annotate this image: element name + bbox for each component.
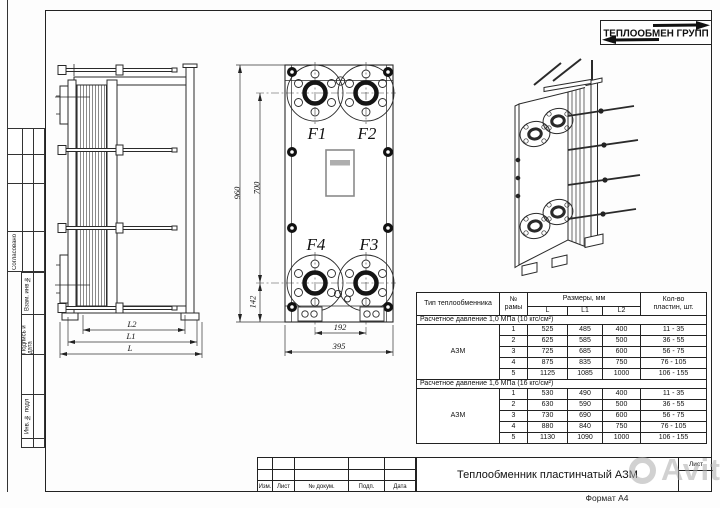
data-cell: 835 (568, 358, 603, 369)
data-cell: 3 (500, 411, 528, 422)
watermark-text: Avito (661, 452, 720, 488)
section-header: Расчетное давление 1,6 МПа (16 кгс/см²) (417, 380, 707, 389)
data-cell: 5 (500, 433, 528, 444)
data-cell: 56 - 75 (641, 411, 707, 422)
data-cell: 1130 (528, 433, 568, 444)
data-cell: 500 (603, 336, 641, 347)
data-cell: 400 (603, 389, 641, 400)
data-cell: 690 (568, 411, 603, 422)
data-cell: 11 - 35 (641, 325, 707, 336)
label-doc: № докум. (295, 481, 349, 492)
data-cell: 530 (528, 389, 568, 400)
data-cell: 56 - 75 (641, 347, 707, 358)
margin-label-inventory: Инв. № подл (22, 394, 33, 438)
col-header-size: L2 (603, 307, 641, 316)
data-cell: 875 (528, 358, 568, 369)
type-cell: АЗМ (417, 325, 500, 380)
data-cell: 590 (568, 400, 603, 411)
margin-lower-box: Взам. инв № Подпись и дата Инв. № подл (21, 272, 45, 448)
spec-table-grid: Тип теплообменника№рамыРазмеры, ммКол-во… (416, 292, 707, 444)
col-header-frame: №рамы (500, 293, 528, 316)
data-cell: 400 (603, 325, 641, 336)
data-cell: 2 (500, 336, 528, 347)
company-logo: ТЕПЛООБМЕН ГРУПП (600, 20, 712, 45)
label-podp: Подп. (349, 481, 385, 492)
col-header-type: Тип теплообменника (417, 293, 500, 316)
data-cell: 36 - 55 (641, 336, 707, 347)
revision-grid: Изм. Лист № докум. Подп. Дата (258, 458, 416, 491)
margin-label-replaced-inv: Взам. инв № (22, 273, 33, 314)
data-cell: 76 - 105 (641, 358, 707, 369)
divider (8, 183, 44, 184)
data-cell: 2 (500, 400, 528, 411)
data-cell: 106 - 155 (641, 369, 707, 380)
data-cell: 585 (568, 336, 603, 347)
data-cell: 4 (500, 358, 528, 369)
data-cell: 3 (500, 347, 528, 358)
label-list: Лист (273, 481, 295, 492)
divider (22, 438, 44, 439)
drawing-sheet: { "logo": { "name": "ТЕПЛООБМЕН ГРУПП" }… (0, 0, 720, 508)
col-header-plates: Кол-вопластин, шт. (641, 293, 707, 316)
label-izm: Изм. (258, 481, 273, 492)
data-cell: 1 (500, 389, 528, 400)
data-cell: 36 - 55 (641, 400, 707, 411)
data-cell: 840 (568, 422, 603, 433)
data-cell: 600 (603, 347, 641, 358)
data-cell: 1090 (568, 433, 603, 444)
label-data: Дата (385, 481, 416, 492)
data-cell: 725 (528, 347, 568, 358)
data-cell: 1000 (603, 433, 641, 444)
data-cell: 630 (528, 400, 568, 411)
section-header: Расчетное давление 1,0 МПа (10 кгс/см²) (417, 316, 707, 325)
format-label: Формат А4 (557, 493, 657, 503)
drawing-title: Теплообменник пластинчатый АЗМ (457, 469, 638, 481)
logo-arrows-icon: ТЕПЛООБМЕН ГРУПП (601, 21, 711, 44)
margin-label-sign-date: Подпись и дата (22, 314, 33, 354)
plate-pack-hatch (76, 80, 107, 307)
data-cell: 625 (528, 336, 568, 347)
data-cell: 880 (528, 422, 568, 433)
spec-table: Тип теплообменника№рамыРазмеры, ммКол-во… (416, 292, 707, 444)
data-cell: 1 (500, 325, 528, 336)
margin-label-approved: Согласовано (8, 231, 22, 273)
logo-text: ТЕПЛООБМЕН ГРУПП (603, 29, 708, 40)
data-cell: 106 - 155 (641, 433, 707, 444)
data-cell: 4 (500, 422, 528, 433)
data-cell: 485 (568, 325, 603, 336)
divider (22, 354, 44, 355)
data-cell: 750 (603, 422, 641, 433)
type-cell: АЗМ (417, 389, 500, 444)
data-cell: 5 (500, 369, 528, 380)
divider (33, 129, 34, 271)
data-cell: 525 (528, 325, 568, 336)
col-header-sizes: Размеры, мм (528, 293, 641, 307)
data-cell: 490 (568, 389, 603, 400)
watermark-ring-icon (629, 457, 656, 484)
divider (8, 154, 44, 155)
data-cell: 76 - 105 (641, 422, 707, 433)
table-row: АЗМ153049040011 - 35 (417, 389, 707, 400)
data-cell: 685 (568, 347, 603, 358)
margin-upper-box: Согласовано (7, 128, 45, 272)
data-cell: 600 (603, 411, 641, 422)
data-cell: 730 (528, 411, 568, 422)
divider (22, 129, 23, 271)
col-header-size: L (528, 307, 568, 316)
data-cell: 1125 (528, 369, 568, 380)
data-cell: 11 - 35 (641, 389, 707, 400)
col-header-size: L1 (568, 307, 603, 316)
table-row: АЗМ152548540011 - 35 (417, 325, 707, 336)
data-cell: 1085 (568, 369, 603, 380)
avito-watermark: Avito (629, 452, 720, 488)
data-cell: 750 (603, 358, 641, 369)
data-cell: 500 (603, 400, 641, 411)
divider (33, 273, 34, 447)
data-cell: 1000 (603, 369, 641, 380)
